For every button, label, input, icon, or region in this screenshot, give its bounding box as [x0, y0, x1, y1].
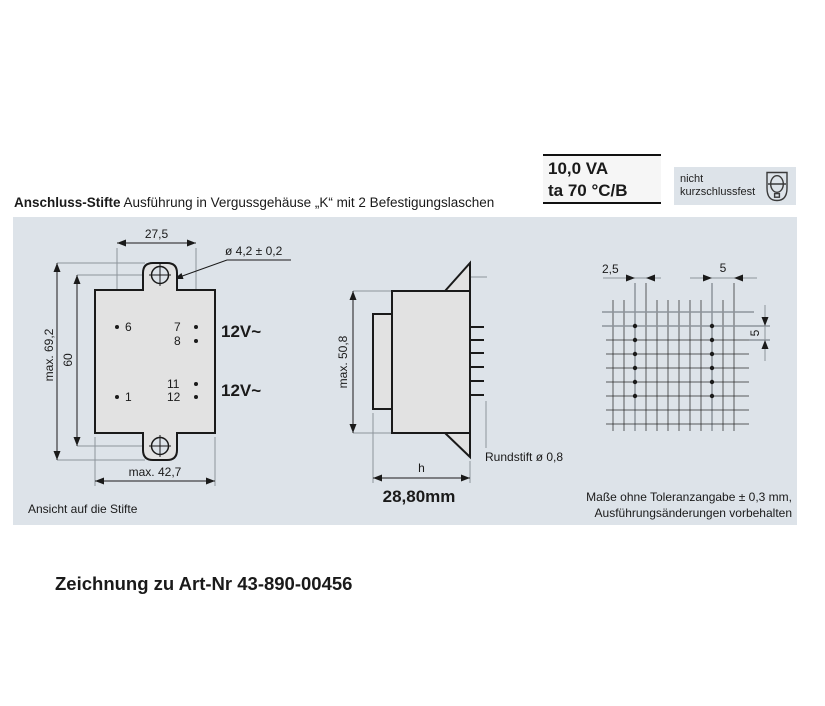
pin-label-7: 7 — [174, 320, 181, 334]
hole-dia-label: ø 4,2 ± 0,2 — [225, 244, 282, 258]
dim-side-height-label: max. 50,8 — [336, 336, 350, 389]
section-subtitle: Ausführung in Vergussgehäuse „K“ mit 2 B… — [124, 195, 495, 210]
drawing-panel: 27,5 ø 4,2 ± 0,2 max. 69,2 60 max. 42,7 … — [13, 217, 797, 525]
grid-pitch-top-label: 5 — [713, 261, 733, 275]
rundstift-label: Rundstift ø 0,8 — [485, 450, 563, 464]
spec-temp-class: ta 70 °C/B — [548, 180, 661, 202]
dim-width-max-label: max. 42,7 — [95, 465, 215, 479]
flange-top — [445, 263, 470, 291]
warning-line1: nicht — [680, 173, 758, 186]
dim-pin-span-label: 27,5 — [117, 227, 196, 241]
dim-height-max-label: max. 69,2 — [42, 329, 56, 382]
pin-label-6: 6 — [125, 320, 132, 334]
winding-top-label: 12V~ — [221, 323, 261, 341]
warning-box: nicht kurzschlussfest — [674, 167, 796, 205]
grid-pitch-right-label: 5 — [748, 330, 762, 337]
flange-bottom — [445, 433, 470, 457]
dim-depth-label: h — [373, 461, 470, 475]
side-pins — [470, 327, 484, 395]
housing-side-bobbin — [373, 314, 392, 409]
section-title: Anschluss-Stifte — [14, 195, 121, 210]
pin-label-11: 11 — [167, 377, 179, 391]
housing-side-body — [392, 291, 470, 433]
winding-bottom-label: 12V~ — [221, 382, 261, 400]
front-view-caption: Ansicht auf die Stifte — [28, 502, 137, 516]
spec-box: 10,0 VA ta 70 °C/B — [543, 154, 661, 204]
drawing-title: Zeichnung zu Art-Nr 43-890-00456 — [55, 573, 352, 595]
pin-grid-view — [602, 275, 770, 432]
grid-pitch-small-label: 2,5 — [602, 262, 619, 276]
front-view — [54, 240, 292, 487]
grid-pin-dots — [633, 324, 714, 398]
pin-label-8: 8 — [174, 334, 181, 348]
warning-line2: kurzschlussfest — [680, 186, 758, 199]
tolerance-note-line1: Maße ohne Toleranzangabe ± 0,3 mm, — [493, 490, 792, 504]
tolerance-note-line2: Ausführungsänderungen vorbehalten — [493, 506, 792, 520]
side-view — [350, 263, 488, 483]
spec-power: 10,0 VA — [548, 158, 661, 180]
transformer-shield-icon — [764, 171, 790, 202]
depth-value-label: 28,80mm — [363, 488, 475, 506]
dim-hole-centers-label: 60 — [61, 353, 75, 366]
section-header: Anschluss-Stifte Ausführung in Vergussge… — [14, 195, 494, 210]
pin-label-1: 1 — [125, 390, 132, 404]
pin-label-12: 12 — [167, 390, 180, 404]
housing-front-outline — [95, 263, 215, 460]
